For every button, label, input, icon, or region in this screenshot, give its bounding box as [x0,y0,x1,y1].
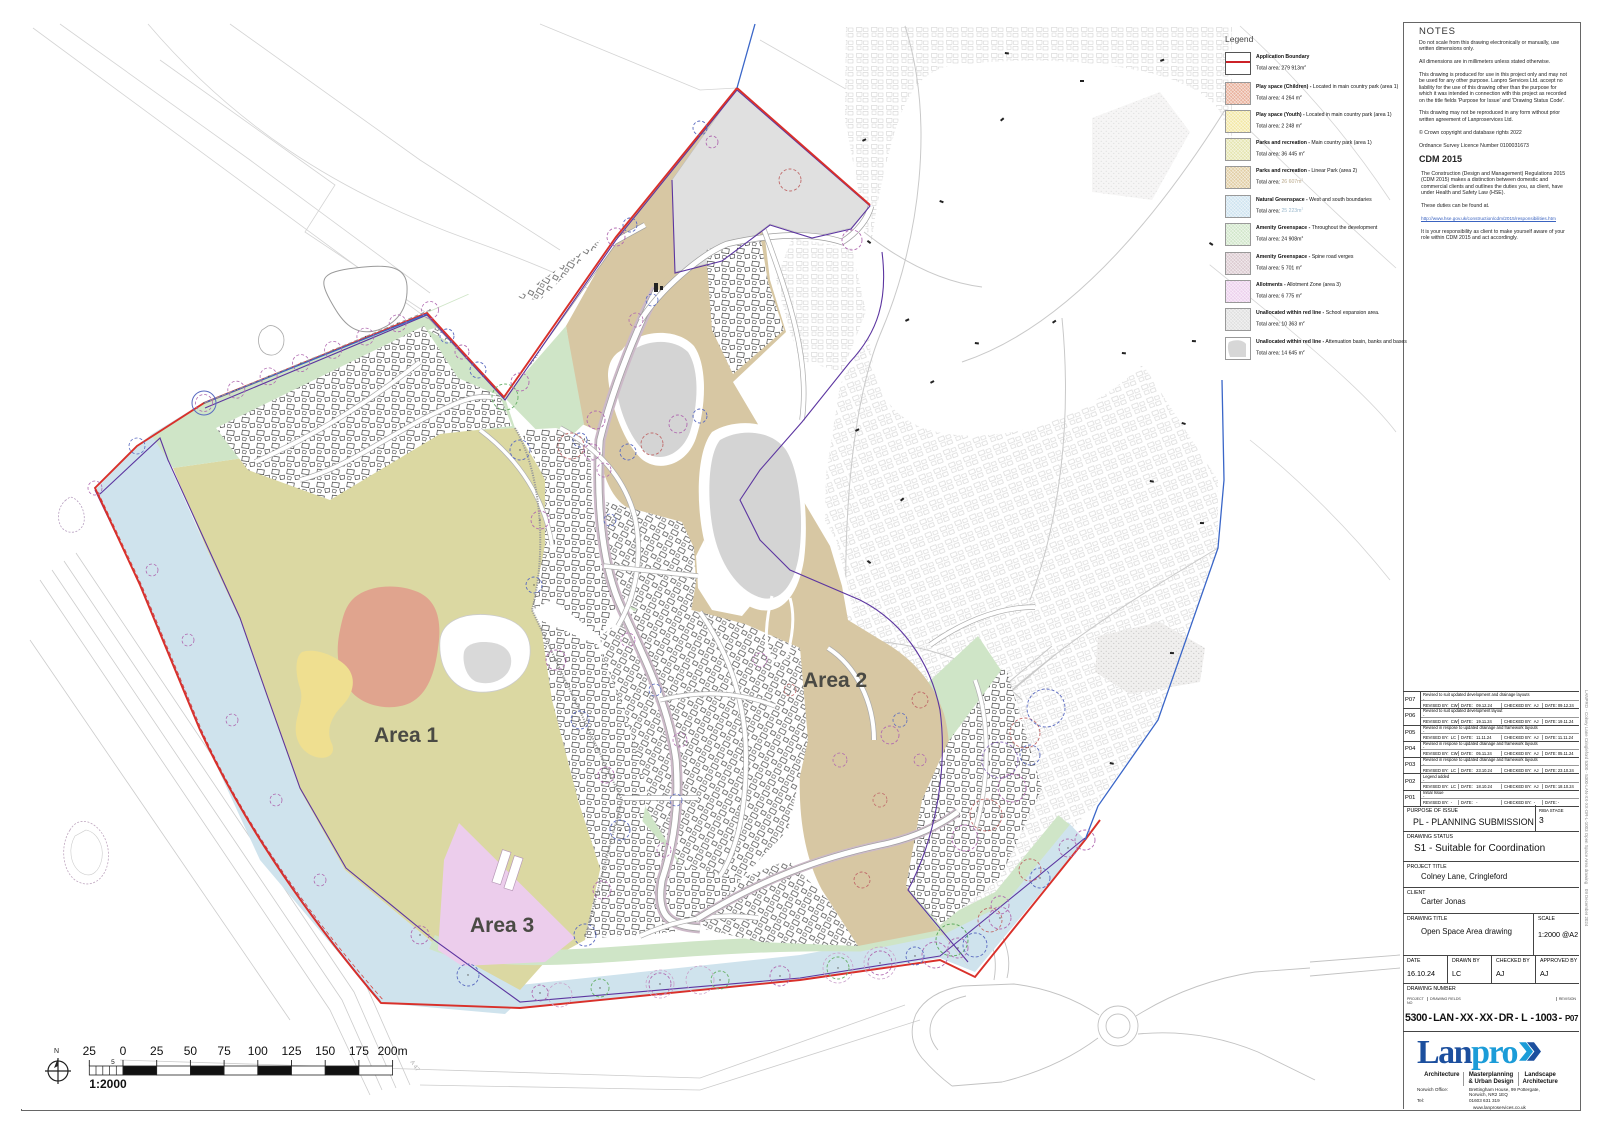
svg-text:100: 100 [248,1044,268,1058]
svg-text:N: N [54,1048,59,1055]
svg-text:Area 1: Area 1 [374,724,439,747]
svg-text:175: 175 [349,1044,369,1058]
svg-text:5: 5 [111,1059,115,1066]
svg-text:1:2000: 1:2000 [89,1077,127,1091]
svg-text:Area 3: Area 3 [470,914,534,937]
svg-text:150: 150 [315,1044,335,1058]
svg-text:50: 50 [184,1044,198,1058]
svg-text:75: 75 [217,1044,231,1058]
svg-text:125: 125 [281,1044,301,1058]
svg-text:25: 25 [150,1044,164,1058]
svg-text:25: 25 [83,1044,97,1058]
svg-text:Area 2: Area 2 [803,669,867,692]
svg-text:200m: 200m [378,1044,408,1058]
svg-text:0: 0 [120,1044,127,1058]
